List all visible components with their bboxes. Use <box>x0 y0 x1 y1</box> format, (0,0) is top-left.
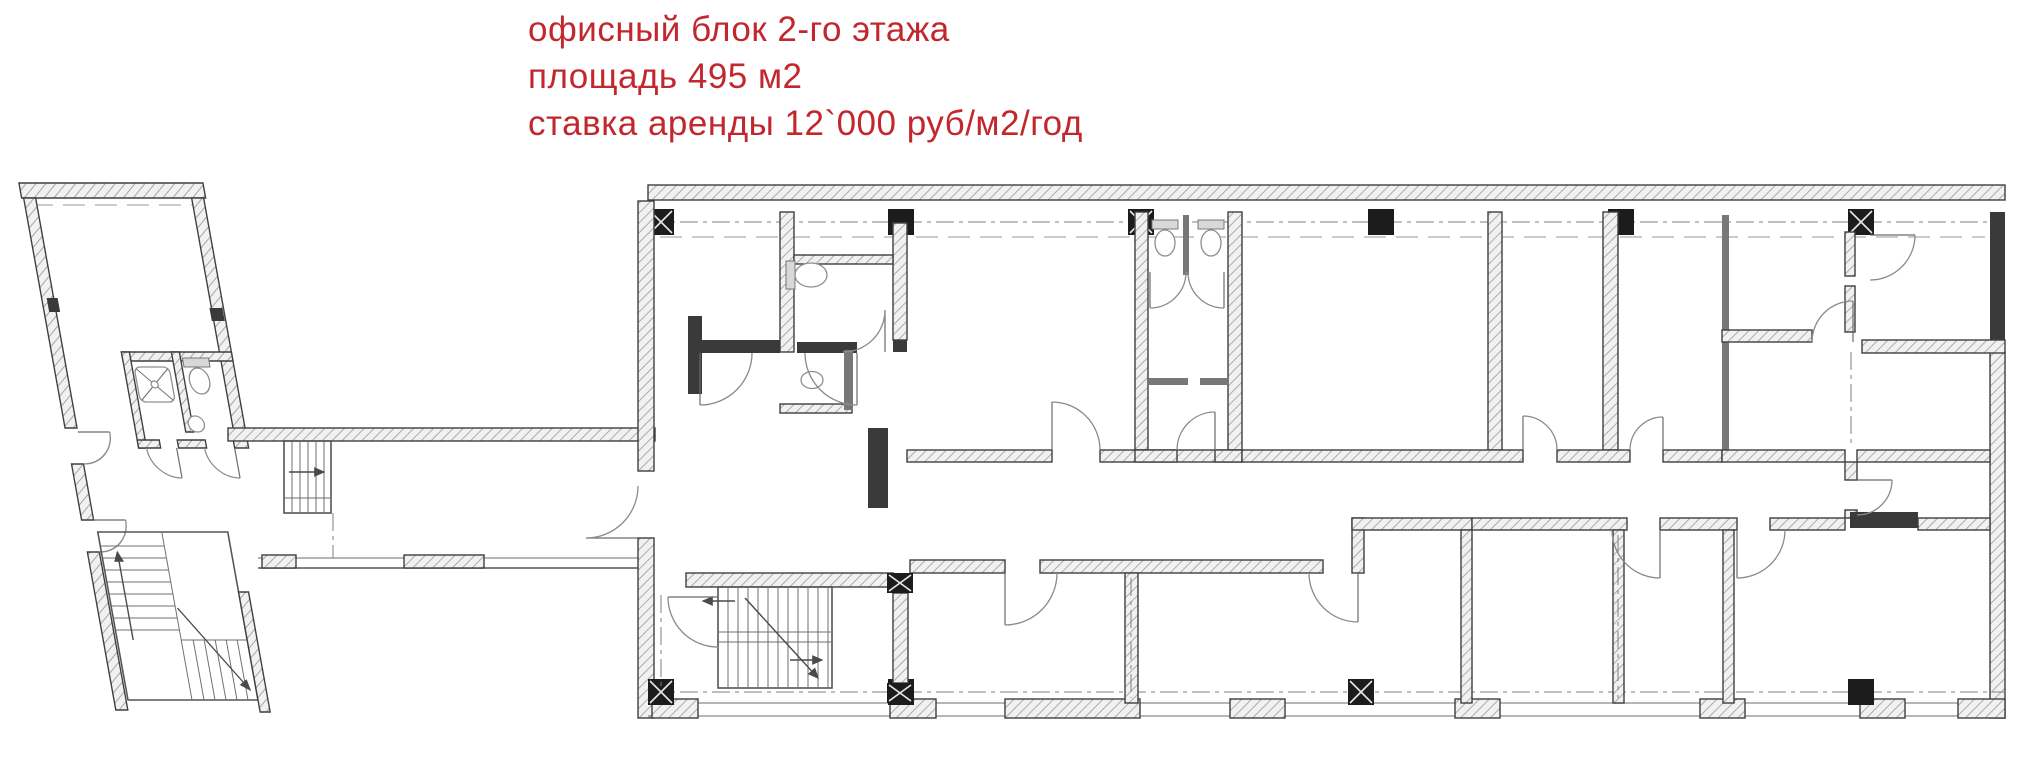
main-left-wall <box>638 201 654 471</box>
wc-room <box>780 255 893 413</box>
doors <box>147 448 240 478</box>
main-right-wall <box>1990 352 2005 718</box>
left-wing-top-wall <box>19 183 206 198</box>
toilet <box>182 358 210 367</box>
shaft <box>868 428 888 508</box>
lower-partitions <box>1125 530 1734 703</box>
left-wing-left-wall <box>24 198 77 428</box>
corridor-bottom-wall <box>910 512 1990 573</box>
window-tick <box>209 308 224 321</box>
main-wing <box>586 185 2005 718</box>
link-corridor-top-wall <box>228 428 655 441</box>
screenshot-root: офисный блок 2-го этажа площадь 495 м2 с… <box>0 0 2032 767</box>
left-wing <box>19 183 298 712</box>
twin-wc-stalls <box>1148 215 1228 385</box>
annotation-block: офисный блок 2-го этажа площадь 495 м2 с… <box>528 6 1083 147</box>
toilet <box>786 261 795 289</box>
toilet <box>1152 220 1178 229</box>
annotation-line-area: площадь 495 м2 <box>528 53 1083 100</box>
main-stair <box>668 573 913 703</box>
annotation-line-rate: ставка аренды 12`000 руб/м2/год <box>528 100 1083 147</box>
bottom-band <box>648 679 2005 718</box>
annotation-line-title: офисный блок 2-го этажа <box>528 6 1083 53</box>
main-top-wall <box>648 185 2005 200</box>
main-right-wall-dark <box>1990 212 2005 352</box>
link-stair <box>284 441 331 513</box>
link-corridor <box>228 428 655 568</box>
corridor-top-wall <box>907 450 1990 518</box>
toilet <box>1198 220 1224 229</box>
